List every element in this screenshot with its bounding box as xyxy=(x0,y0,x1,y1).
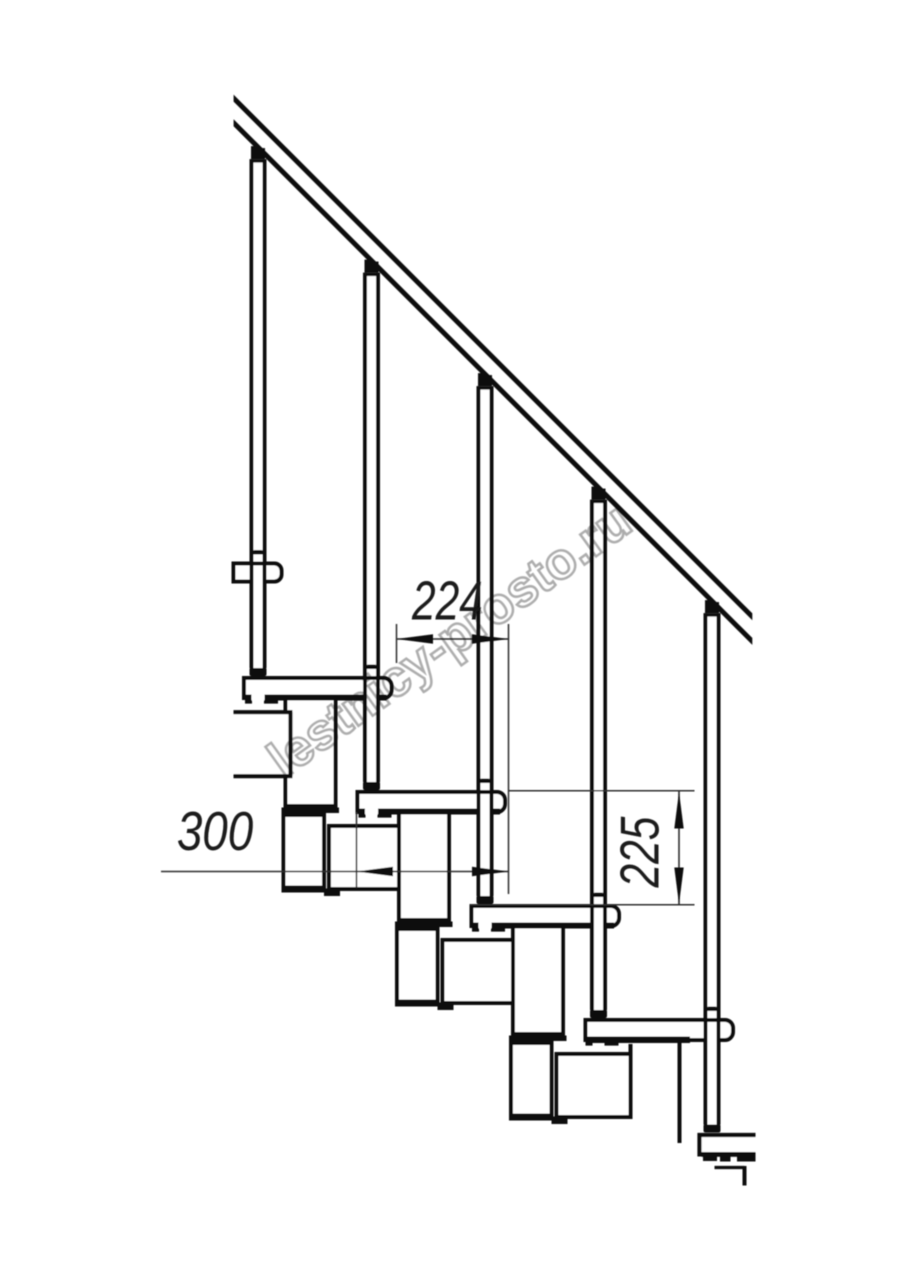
svg-text:300: 300 xyxy=(177,800,253,862)
svg-text:lestnicy-prosto.ru: lestnicy-prosto.ru xyxy=(257,491,641,788)
svg-text:225: 225 xyxy=(611,816,671,888)
